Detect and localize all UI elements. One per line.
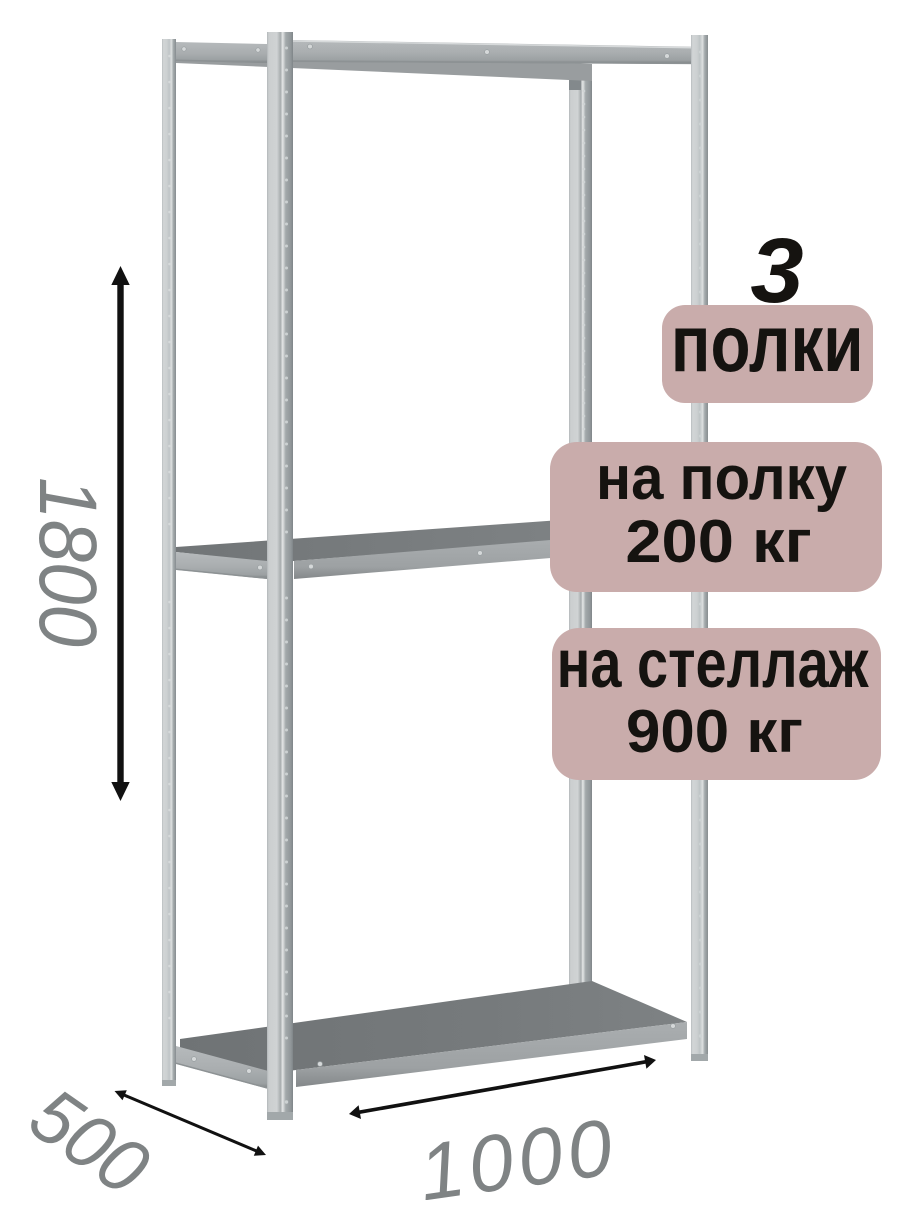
svg-text:900 кг: 900 кг bbox=[626, 698, 803, 765]
svg-text:на стеллаж: на стеллаж bbox=[557, 627, 869, 702]
svg-text:полки: полки bbox=[671, 297, 864, 388]
svg-text:1800: 1800 bbox=[22, 477, 114, 647]
svg-text:на полку: на полку bbox=[596, 442, 847, 512]
svg-text:200 кг: 200 кг bbox=[625, 508, 811, 575]
svg-text:500: 500 bbox=[15, 1071, 165, 1200]
svg-text:1000: 1000 bbox=[413, 1102, 622, 1200]
